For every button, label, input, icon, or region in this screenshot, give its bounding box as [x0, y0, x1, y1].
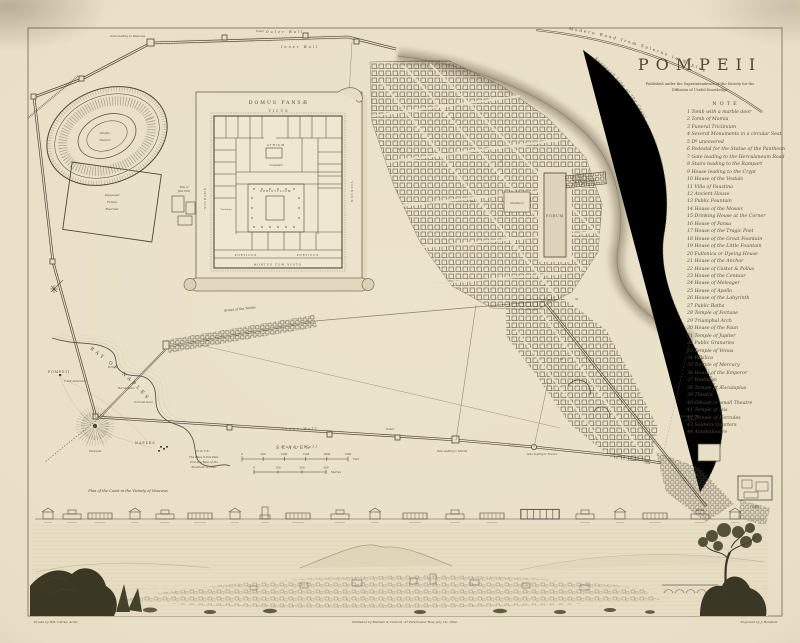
- svg-text:0: 0: [253, 466, 255, 470]
- bay-caption: Plan of the Coast in the Vicinity of Ves…: [87, 489, 168, 493]
- svg-text:1000: 1000: [281, 452, 288, 456]
- note-item: 38 Temple of Æsculapius: [687, 385, 787, 392]
- bay-note-heading: NOTE.: [196, 449, 211, 453]
- forum-label: FORUM: [546, 214, 564, 218]
- inner-wall-bottom-label: Inner Wall: [281, 427, 319, 431]
- note-item: 22 House of Castor & Pollux: [687, 266, 787, 273]
- title-text: POMPEII: [638, 55, 762, 74]
- supposed-label-2: Forum: [106, 200, 117, 204]
- pantheon-label: Pantheon: [509, 201, 523, 205]
- note-item: 17 House of the Tragic Poet: [687, 228, 787, 235]
- villa-julia-label-2: Julia Felix: [177, 190, 191, 193]
- note-item: 16 House of Pansa: [687, 221, 787, 228]
- supposed-label-3: Boarium: [105, 207, 119, 211]
- svg-text:31: 31: [500, 160, 504, 163]
- town-torre: Torre del Greco: [134, 401, 154, 404]
- naples-label: NAPLES: [135, 441, 156, 445]
- title-subtitle-1: Published under the Superintendence of t…: [646, 82, 755, 86]
- metre-unit: Metres: [330, 470, 342, 474]
- street-of-tombs-label: Street of the Tombs: [224, 305, 257, 312]
- panorama: [30, 523, 768, 616]
- svg-text:16: 16: [398, 148, 402, 151]
- inner-wall-top-label: Inner Wall: [280, 45, 319, 49]
- tomb-enclosure: [698, 444, 720, 461]
- herculaneum-gate: [163, 341, 169, 349]
- title-subtitle-2: Diffusion of Useful Knowledge.: [672, 88, 728, 92]
- town-herculaneum: Herculaneum: [117, 387, 135, 390]
- bay-pompeii-label: POMPEII: [48, 370, 70, 374]
- svg-text:34: 34: [575, 298, 579, 301]
- note-item: 21 House of the Anchor: [687, 258, 787, 265]
- note-item: 8 Stairs leading to the Rampart: [687, 161, 787, 168]
- note-item: 43 Soldiers Quarters: [687, 422, 787, 429]
- note-item: 33 Temple of Venus: [687, 348, 787, 355]
- note-item: 29 Triumphal Arch: [687, 318, 787, 325]
- feet-scale-ticks: 0 500 1000 1500 2000 2500: [241, 452, 351, 456]
- note-item: 41 Temple of Isis: [687, 407, 787, 414]
- imprint-center: Published by Baldwin & Cradock, 47 Pater…: [351, 620, 458, 624]
- note-item: 27 Public Baths: [687, 303, 787, 310]
- note-item: 19 House of the Little Fountain: [687, 243, 787, 250]
- note-item: 30 House of the Faun: [687, 325, 787, 332]
- note-item: 5 Dº uncovered: [687, 139, 787, 146]
- gate-vesuvius-label: Gate leading to Vesuvius: [110, 34, 146, 38]
- feet-unit: Feet: [352, 457, 360, 461]
- note-item: 10 House of the Vestals: [687, 176, 787, 183]
- bay-note-line: Mountain, is Lava.: [190, 465, 216, 469]
- note-item: 15 Drinking House at the Corner: [687, 213, 787, 220]
- note-item: 4 Several Monuments in a circular Seat: [687, 131, 787, 138]
- porticus-label-2: PORTICUS: [297, 253, 319, 257]
- villa-julia-label-1: Villa of: [180, 186, 190, 189]
- note-item: 35 Temple of Mercury: [687, 362, 787, 369]
- note-item: 32 Public Granaries: [687, 340, 787, 347]
- imprint-right: Engraved by J. Henshall.: [739, 620, 778, 624]
- villa-label: Villa: [751, 505, 758, 509]
- domus-pansae-inset: DOMUS PANSÆ VICUS VICULUS VICULUS ATRIUM: [184, 88, 374, 291]
- amphitheatre-label-2: theatre: [99, 138, 110, 142]
- svg-text:300: 300: [324, 466, 329, 470]
- svg-text:500: 500: [261, 452, 266, 456]
- note-item: 40 Odeum or small Theatre: [687, 400, 787, 407]
- svg-text:2000: 2000: [324, 452, 331, 456]
- imprint-left: Drawn by W.B. Clarke, Archt.: [33, 620, 79, 624]
- gate-nocera-label: Gate leading to Nocera: [527, 452, 558, 456]
- note-item: 42 Temple of Hercules: [687, 415, 787, 422]
- note-heading: NOTE: [712, 101, 739, 107]
- scales: SCALES 0 500 1000 1500 2000 2500 Feet 0 …: [241, 445, 360, 474]
- outer-wall-top-label: Outer Wall: [266, 30, 304, 34]
- amphitheatre-label-1: Amphi-: [99, 131, 111, 135]
- bay-inset: BAY OF NAPLES Vesuvius POMPEII T. dell' …: [48, 331, 230, 493]
- svg-text:1500: 1500: [303, 452, 310, 456]
- svg-text:2500: 2500: [345, 452, 352, 456]
- note-item: 12 Ancient House: [687, 191, 787, 198]
- note-item: 2 Tomb of Mamia: [687, 116, 787, 123]
- note-item: 7 Gate leading to the Herculaneum Road: [687, 154, 787, 161]
- svg-text:200: 200: [300, 466, 305, 470]
- metre-scale-ticks: 0 100 200 300: [253, 466, 329, 470]
- svg-text:22: 22: [452, 118, 456, 121]
- viculus-right-label: VICULUS: [350, 180, 354, 203]
- peristylium-label: PERISTYLIUM: [260, 189, 291, 193]
- note-item: 1 Tomb with a marble door: [687, 109, 787, 116]
- tower-top-label: Tower: [256, 29, 265, 33]
- note-item: 23 House of the Centaur: [687, 273, 787, 280]
- amphitheatre-plan: Amphi- theatre Supposed Forum Boarium Vi…: [28, 69, 195, 242]
- vesuvius-label: Vesuvius: [89, 449, 102, 453]
- supposed-label-1: Supposed: [105, 193, 120, 197]
- note-item: 9 House leading to the Crypt: [687, 169, 787, 176]
- note-item: 39 Theatre: [687, 392, 787, 399]
- gate-stabiae-label: Gate leading to Stabiæ: [437, 449, 468, 453]
- villa-julia-complex: [172, 196, 195, 225]
- note-list: 1 Tomb with a marble door2 Tomb of Mamia…: [687, 109, 787, 437]
- note-item: 3 Funeral Triclinium: [687, 124, 787, 131]
- elevation-strip: [35, 507, 765, 525]
- note-item: 31 Temple of Jupiter: [687, 333, 787, 340]
- naples-city: NAPLES: [135, 441, 168, 452]
- note-item: 24 House of Meleager: [687, 280, 787, 287]
- note-item: 14 House of the Mosaic: [687, 206, 787, 213]
- note-item: 28 Temple of Fortune: [687, 310, 787, 317]
- note-item: 18 House of the Great Fountain: [687, 236, 787, 243]
- town-portici: Portici: [107, 366, 116, 369]
- note-item: 25 House of Apollo: [687, 288, 787, 295]
- note-item: 37 Pantheon: [687, 377, 787, 384]
- tower-bottom-label: Tower: [386, 427, 395, 431]
- svg-text:100: 100: [276, 466, 281, 470]
- hortus-label: HORTUS CUM XYSTO: [254, 263, 302, 267]
- map-plate: Supposed Line of the Coast Port of Pompe…: [0, 0, 800, 643]
- viculus-left-label: VICULUS: [203, 187, 207, 210]
- engraving-canvas: Supposed Line of the Coast Port of Pompe…: [0, 0, 800, 643]
- svg-text:27: 27: [470, 200, 474, 203]
- svg-text:0: 0: [241, 452, 243, 456]
- porticus-label-1: PORTICUS: [235, 253, 257, 257]
- note-item: 13 Public Fountain: [687, 198, 787, 205]
- town-annunziata: T. dell' Annunziata: [64, 380, 87, 383]
- imprint: Drawn by W.B. Clarke, Archt. Published b…: [33, 620, 778, 624]
- vesuvius-mountain: [78, 411, 112, 446]
- note-item: 44 Amphitheatre: [687, 429, 787, 436]
- note-item: 6 Pedestal for the Statue of the Pantheo…: [687, 146, 787, 153]
- note-item: 34 Basilica: [687, 355, 787, 362]
- bay-note-line: The Plain in this Plan,: [189, 455, 219, 459]
- bay-note-line: from the Base of the: [189, 460, 218, 464]
- note-item: 11 Villa of Faustina: [687, 184, 787, 191]
- cavaedium-label: Cavædium: [270, 164, 284, 167]
- scales-heading: SCALES: [276, 445, 312, 450]
- note-item: 36 House of the Emperor: [687, 370, 787, 377]
- note-item: 20 Fullonica or Dyeing House: [687, 251, 787, 258]
- triclinium-label: Triclinium: [220, 208, 231, 211]
- atrium-label: ATRIUM: [266, 143, 285, 147]
- villa-block: [738, 476, 772, 500]
- domus-title: DOMUS PANSÆ: [249, 100, 309, 106]
- note-item: 26 House of the Labyrinth: [687, 295, 787, 302]
